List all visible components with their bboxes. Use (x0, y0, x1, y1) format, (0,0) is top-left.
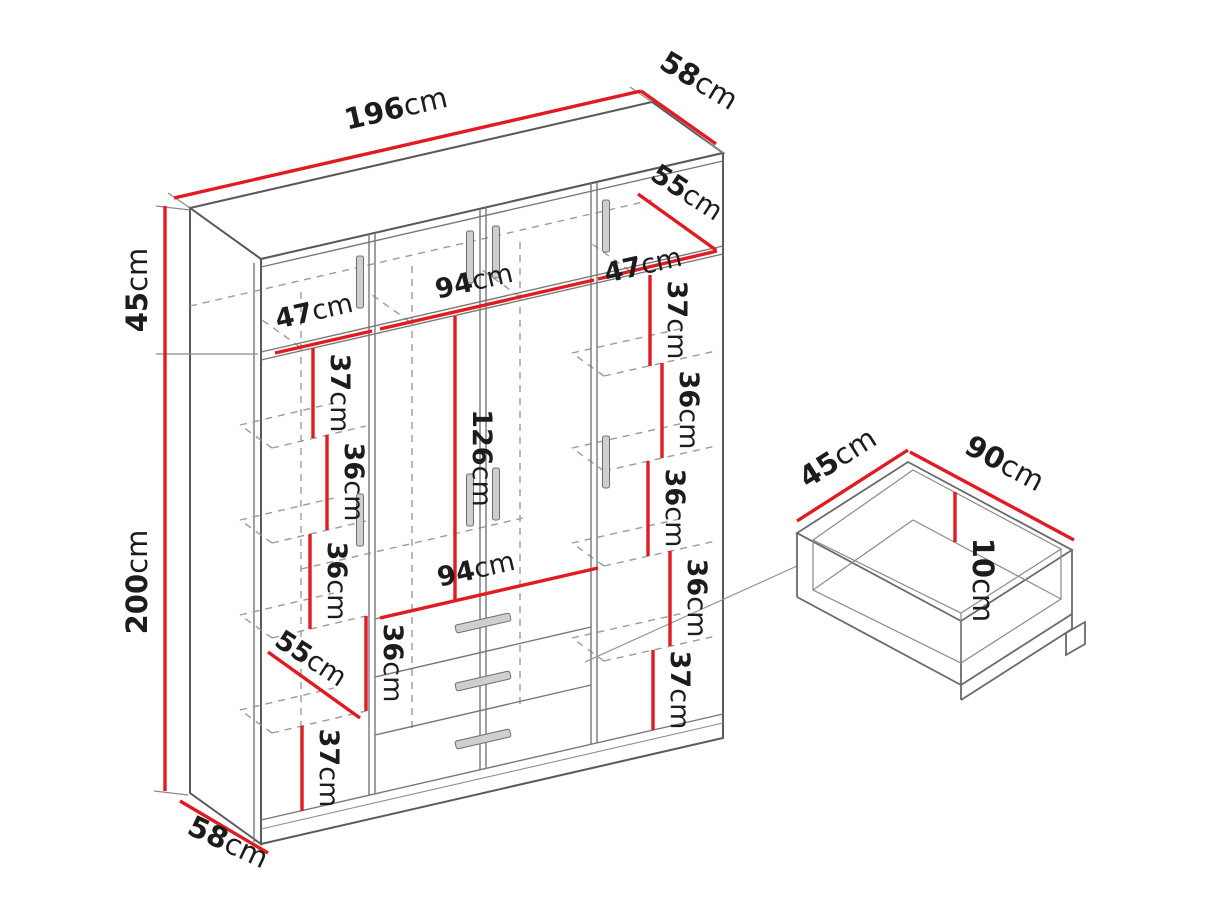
dim-unit: cm (120, 248, 154, 292)
dim-unit: cm (400, 80, 451, 123)
dim-value: 37 (661, 281, 692, 319)
dim-unit: cm (377, 661, 408, 702)
dim-left-col-4-label: 36cm (377, 624, 408, 703)
dim-value: 36 (321, 542, 352, 580)
dim-top-section-height: 45cm (120, 206, 165, 354)
dim-left-col-5-label: 37cm (313, 729, 344, 808)
dim-value: 45 (120, 292, 154, 332)
dim-value: 196 (341, 90, 408, 137)
dim-unit: cm (664, 688, 695, 729)
dim-right-col-2-label: 36cm (673, 371, 704, 450)
dim-unit: cm (324, 391, 355, 432)
dim-value: 37 (324, 354, 355, 392)
door-handle (603, 200, 610, 252)
dim-right-col-1-label: 37cm (661, 281, 692, 360)
dim-unit: cm (120, 530, 154, 574)
dim-left-col-1-label: 37cm (324, 354, 355, 433)
dim-top-section-height-label: 45cm (120, 248, 154, 333)
dim-unit: cm (313, 766, 344, 807)
left-side-face (190, 208, 261, 844)
dim-value: 37 (664, 651, 695, 689)
dim-right-col-5-label: 37cm (664, 651, 695, 730)
dim-unit: cm (966, 578, 1000, 622)
diagram-canvas: 196cm 58cm 45cm 200cm 58cm 47cm 94cm (0, 0, 1214, 911)
dim-unit: cm (681, 596, 712, 637)
dim-drawer-depth-label: 45cm (793, 420, 883, 494)
dim-value: 36 (659, 469, 690, 507)
dim-drawer-height-label: 10cm (966, 538, 1000, 623)
dim-right-col-3-label: 36cm (659, 469, 690, 548)
door-handle (357, 256, 364, 308)
dim-overall-width-label: 196cm (341, 80, 451, 137)
dim-value: 126 (466, 409, 497, 465)
drawer-foot (1066, 622, 1085, 655)
dim-unit: cm (661, 318, 692, 359)
dim-unit: cm (673, 408, 704, 449)
door-handle (603, 436, 610, 488)
dim-unit: cm (321, 579, 352, 620)
dim-unit: cm (466, 466, 497, 507)
dim-value: 10 (966, 538, 1000, 578)
dim-value: 36 (681, 559, 712, 597)
dim-left-col-2-label: 36cm (338, 443, 369, 522)
dim-total-height: 200cm (120, 354, 165, 791)
dim-hanging-height-label: 126cm (466, 409, 497, 507)
dim-value: 36 (673, 371, 704, 409)
wardrobe-dimension-diagram: 196cm 58cm 45cm 200cm 58cm 47cm 94cm (0, 0, 1214, 911)
dim-value: 200 (120, 574, 154, 635)
dim-total-height-label: 200cm (120, 530, 154, 635)
dim-value: 37 (313, 729, 344, 767)
dim-unit: cm (338, 480, 369, 521)
dim-right-col-4-label: 36cm (681, 559, 712, 638)
dim-top-depth-label: 58cm (654, 44, 744, 117)
dim-unit: cm (659, 506, 690, 547)
dim-left-col-3-label: 36cm (321, 542, 352, 621)
dim-value: 36 (338, 443, 369, 481)
dim-value: 36 (377, 624, 408, 662)
